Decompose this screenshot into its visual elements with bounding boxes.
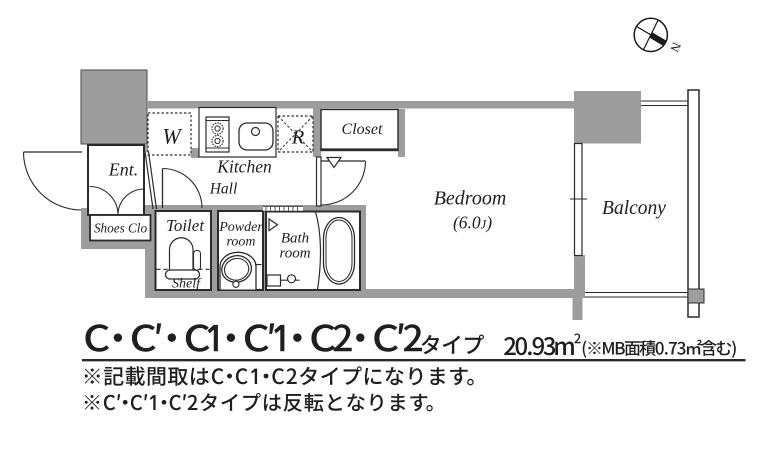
svg-text:N: N xyxy=(667,40,684,54)
svg-text:room: room xyxy=(226,235,255,250)
svg-text:Shelf: Shelf xyxy=(172,277,202,292)
svg-text:Shoes Clo: Shoes Clo xyxy=(94,221,148,236)
svg-text:Powder: Powder xyxy=(218,220,263,235)
svg-text:(6.0J): (6.0J) xyxy=(453,213,492,233)
svg-text:Ent.: Ent. xyxy=(108,160,139,180)
svg-text:room: room xyxy=(279,246,310,262)
svg-text:Bedroom: Bedroom xyxy=(434,188,507,210)
svg-text:Kitchen: Kitchen xyxy=(216,157,272,177)
svg-text:Balcony: Balcony xyxy=(602,198,666,219)
svg-text:R: R xyxy=(291,127,305,149)
svg-text:Bath: Bath xyxy=(281,231,309,247)
svg-text:Toilet: Toilet xyxy=(166,216,205,235)
svg-text:Hall: Hall xyxy=(209,181,238,198)
svg-text:W: W xyxy=(162,124,182,149)
svg-text:Closet: Closet xyxy=(342,121,383,138)
